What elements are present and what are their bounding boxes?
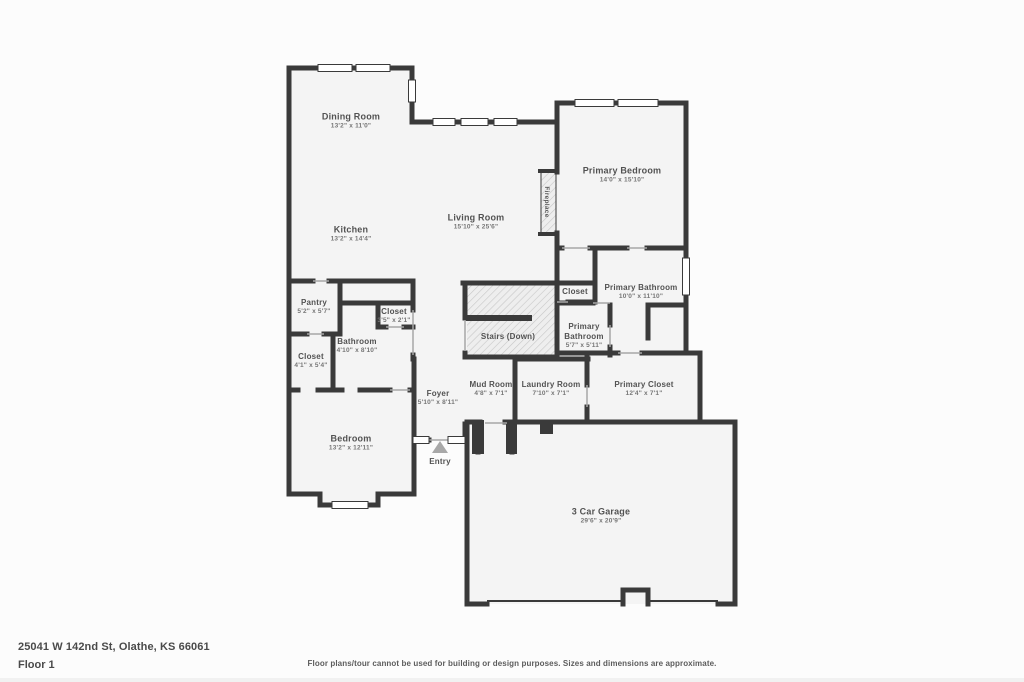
fireplace: [538, 171, 559, 234]
window: [409, 80, 416, 102]
floor-plan-page: Dining Room 13'2" x 11'0" Kitchen 13'2" …: [0, 0, 1024, 682]
bottom-edge-divider: [0, 678, 1024, 682]
window: [318, 65, 352, 72]
window: [683, 258, 690, 295]
window: [618, 100, 658, 107]
floor-plan-drawing: [0, 0, 1024, 682]
window: [575, 100, 614, 107]
property-address: 25041 W 142nd St, Olathe, KS 66061: [18, 641, 210, 653]
window: [461, 119, 488, 126]
disclaimer-text: Floor plans/tour cannot be used for buil…: [0, 659, 1024, 668]
window: [356, 65, 390, 72]
entry-sidelight: [413, 437, 429, 444]
window: [433, 119, 455, 126]
entry-direction-marker: [432, 441, 448, 453]
entry-sidelight: [448, 437, 465, 444]
window: [494, 119, 517, 126]
stairs-hatch: [465, 285, 555, 356]
window: [332, 502, 368, 509]
